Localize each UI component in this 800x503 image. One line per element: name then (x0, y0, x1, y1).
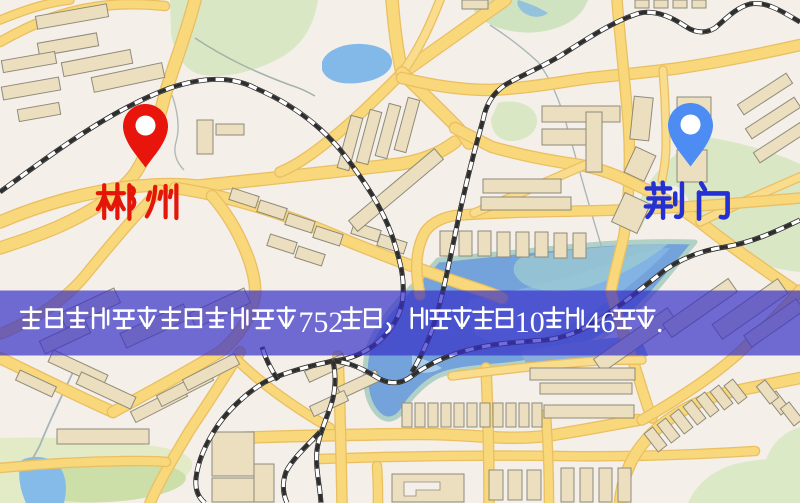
svg-text:46: 46 (585, 306, 615, 339)
svg-text:.: . (656, 306, 664, 339)
svg-text:10: 10 (515, 306, 545, 339)
svg-text:752: 752 (298, 306, 343, 339)
